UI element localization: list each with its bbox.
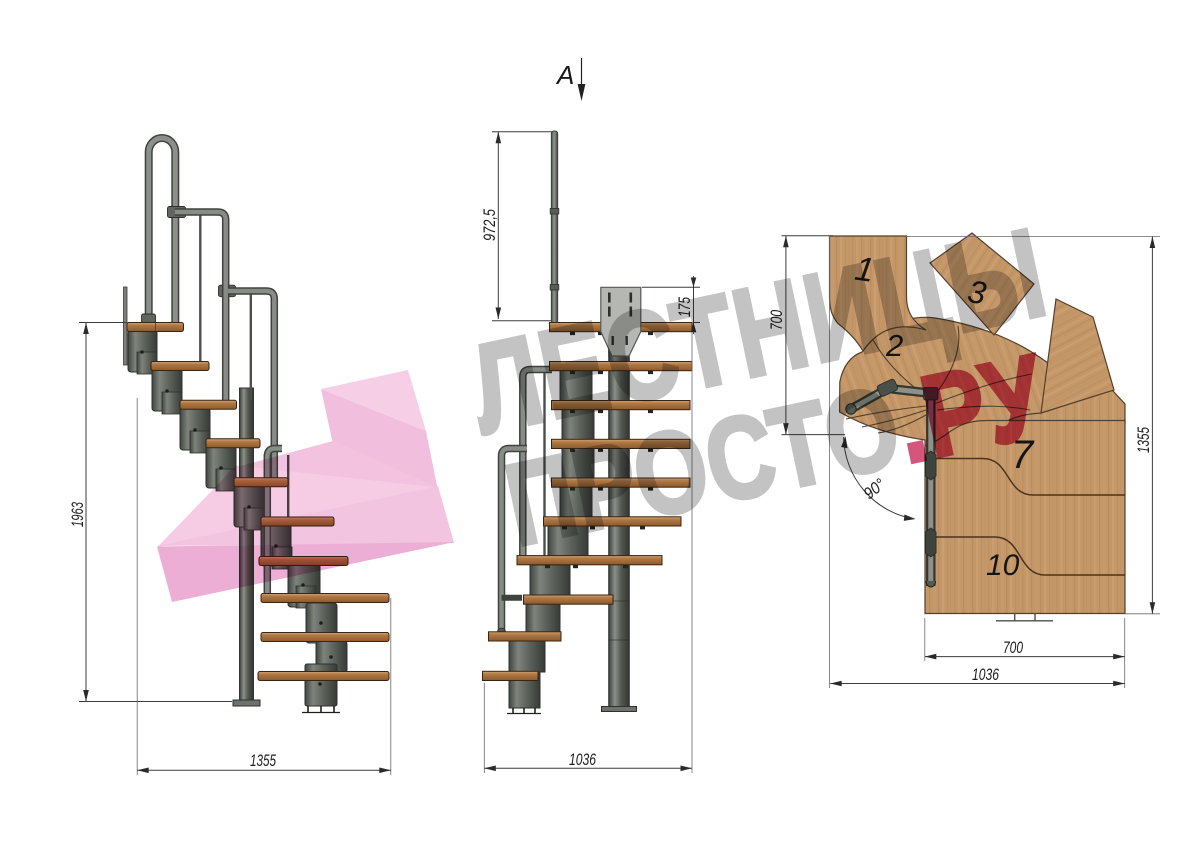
svg-text:1036: 1036 [972,666,1000,684]
svg-text:1355: 1355 [1135,426,1153,453]
svg-text:A: A [555,60,574,90]
svg-text:1355: 1355 [250,752,277,770]
svg-text:1963: 1963 [69,501,87,527]
svg-text:700: 700 [1003,639,1024,657]
svg-text:10: 10 [986,549,1020,582]
svg-text:1036: 1036 [569,751,597,769]
svg-text:972,5: 972,5 [481,208,499,241]
